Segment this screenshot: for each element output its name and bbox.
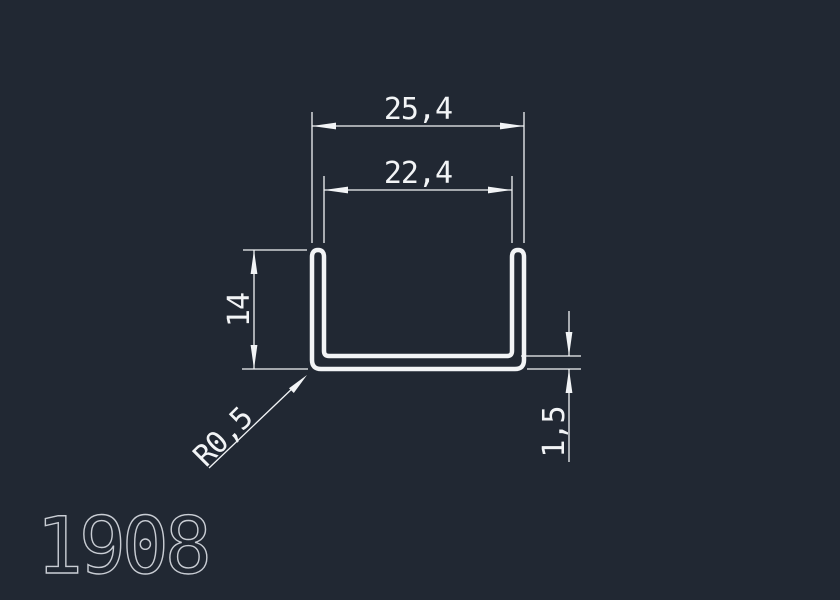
- dimension-label-height: 14: [222, 293, 257, 327]
- cad-drawing-viewport: 25,4 22,4 14 1,5 R0,5 1908: [0, 0, 840, 600]
- cad-drawing-canvas: 25,4 22,4 14 1,5 R0,5 1908: [0, 0, 840, 600]
- dimension-label-thickness: 1,5: [537, 406, 572, 457]
- part-number-label: 1908: [36, 502, 208, 592]
- dimension-label-inner-width: 22,4: [384, 156, 452, 191]
- dimension-label-outer-width: 25,4: [384, 92, 452, 127]
